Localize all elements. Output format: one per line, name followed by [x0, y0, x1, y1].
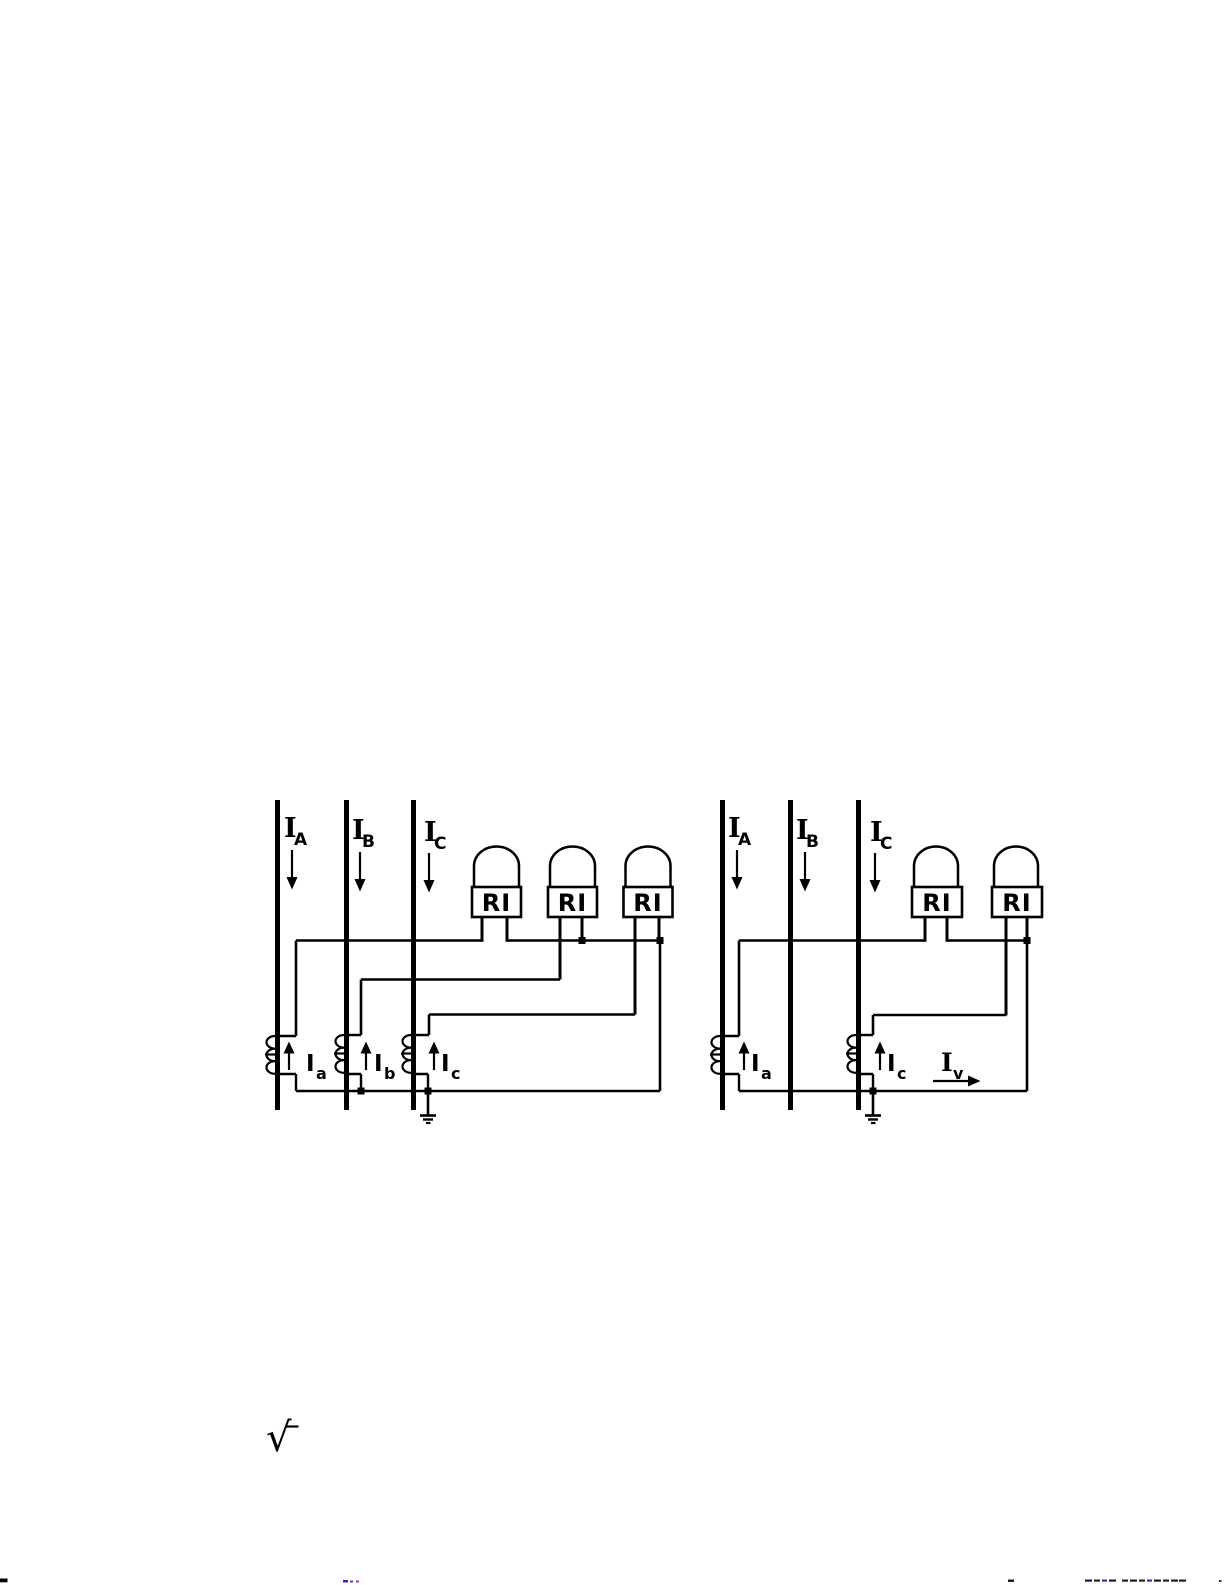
scan-artifact [343, 1580, 348, 1583]
scan-artifact [0, 1579, 8, 1583]
bus-c-label-subscript: C [880, 834, 892, 854]
scan-artifact [356, 1581, 359, 1583]
ct-b-label: I [374, 1051, 383, 1077]
down-arrow-icon [800, 852, 811, 892]
scan-artifact [1147, 1580, 1152, 1582]
up-arrow-icon [429, 1042, 440, 1071]
relay-symbol: RI [912, 847, 962, 942]
ct-a-label-subscript: a [316, 1064, 327, 1083]
relay-label: RI [482, 889, 511, 917]
secondary-wiring [739, 941, 1027, 1092]
down-arrow-icon [287, 850, 298, 890]
relay-symbol: RI [548, 847, 597, 980]
residual-current-label: I [941, 1048, 953, 1077]
up-arrow-icon [361, 1042, 372, 1071]
left-diagram: I A I B I C RI RI [265, 800, 673, 1123]
down-arrow-icon [424, 853, 435, 893]
relay-symbol: RI [992, 847, 1042, 1016]
relay-dome [474, 847, 519, 888]
ground-icon [420, 1091, 436, 1123]
scan-artifact [1219, 1580, 1222, 1582]
scan-artifacts [0, 1579, 1222, 1583]
ct-a-label: I [306, 1051, 315, 1077]
scan-artifact [1139, 1580, 1145, 1582]
down-arrow-icon [732, 850, 743, 890]
scan-artifact [1179, 1580, 1186, 1582]
secondary-wiring [296, 941, 660, 1092]
down-arrow-icon [870, 853, 881, 893]
scan-artifact [1154, 1580, 1161, 1582]
ct-c-label-subscript: c [897, 1064, 906, 1083]
scan-artifact [1122, 1580, 1128, 1582]
ct-c-label: I [887, 1051, 896, 1077]
scan-artifact [350, 1581, 353, 1583]
bus-b-label-subscript: B [362, 832, 375, 852]
scan-artifact [1085, 1580, 1092, 1582]
relay-label: RI [1002, 889, 1031, 917]
scan-artifact [1130, 1580, 1137, 1582]
ct-b-label-subscript: b [384, 1064, 395, 1083]
junction-dot [579, 937, 586, 944]
relay-label: RI [922, 889, 951, 917]
radical-glyph: √ [266, 1415, 292, 1461]
ct-c-label: I [441, 1051, 450, 1077]
right-diagram: I A I B I C RI RI [710, 800, 1042, 1123]
relay-symbol: RI [472, 847, 521, 942]
scan-artifact [1094, 1580, 1100, 1582]
relay-dome [914, 847, 958, 888]
relay-dome [994, 847, 1038, 888]
relay-dome [626, 847, 671, 888]
scan-artifact [1163, 1580, 1169, 1582]
bus-a-label-subscript: A [738, 830, 752, 850]
radical-symbol: √ [266, 1415, 299, 1461]
scan-artifact [1008, 1580, 1014, 1583]
bus-b-label-subscript: B [806, 832, 819, 852]
bus-a-label-subscript: A [294, 830, 308, 850]
scan-artifact [1171, 1580, 1178, 1582]
circuit-figure: I A I B I C RI RI [0, 0, 1225, 1585]
bus-c-label-subscript: C [434, 834, 446, 854]
relay-label: RI [633, 889, 662, 917]
relay-symbol: RI [624, 847, 673, 1015]
scan-artifact [1102, 1580, 1107, 1582]
ct-a-label: I [751, 1051, 760, 1077]
scanned-document-page: I A I B I C RI RI [0, 0, 1225, 1585]
up-arrow-icon [284, 1042, 295, 1071]
scan-artifact [1109, 1580, 1116, 1582]
ground-icon [865, 1091, 881, 1123]
relay-dome [550, 847, 595, 888]
ct-a-label-subscript: a [761, 1064, 772, 1083]
current-transformer [265, 1036, 296, 1091]
junction-dot [1024, 937, 1031, 944]
junction-dot [657, 937, 664, 944]
up-arrow-icon [739, 1042, 750, 1071]
ct-c-label-subscript: c [451, 1064, 460, 1083]
up-arrow-icon [875, 1042, 886, 1071]
down-arrow-icon [355, 852, 366, 892]
relay-label: RI [558, 889, 587, 917]
